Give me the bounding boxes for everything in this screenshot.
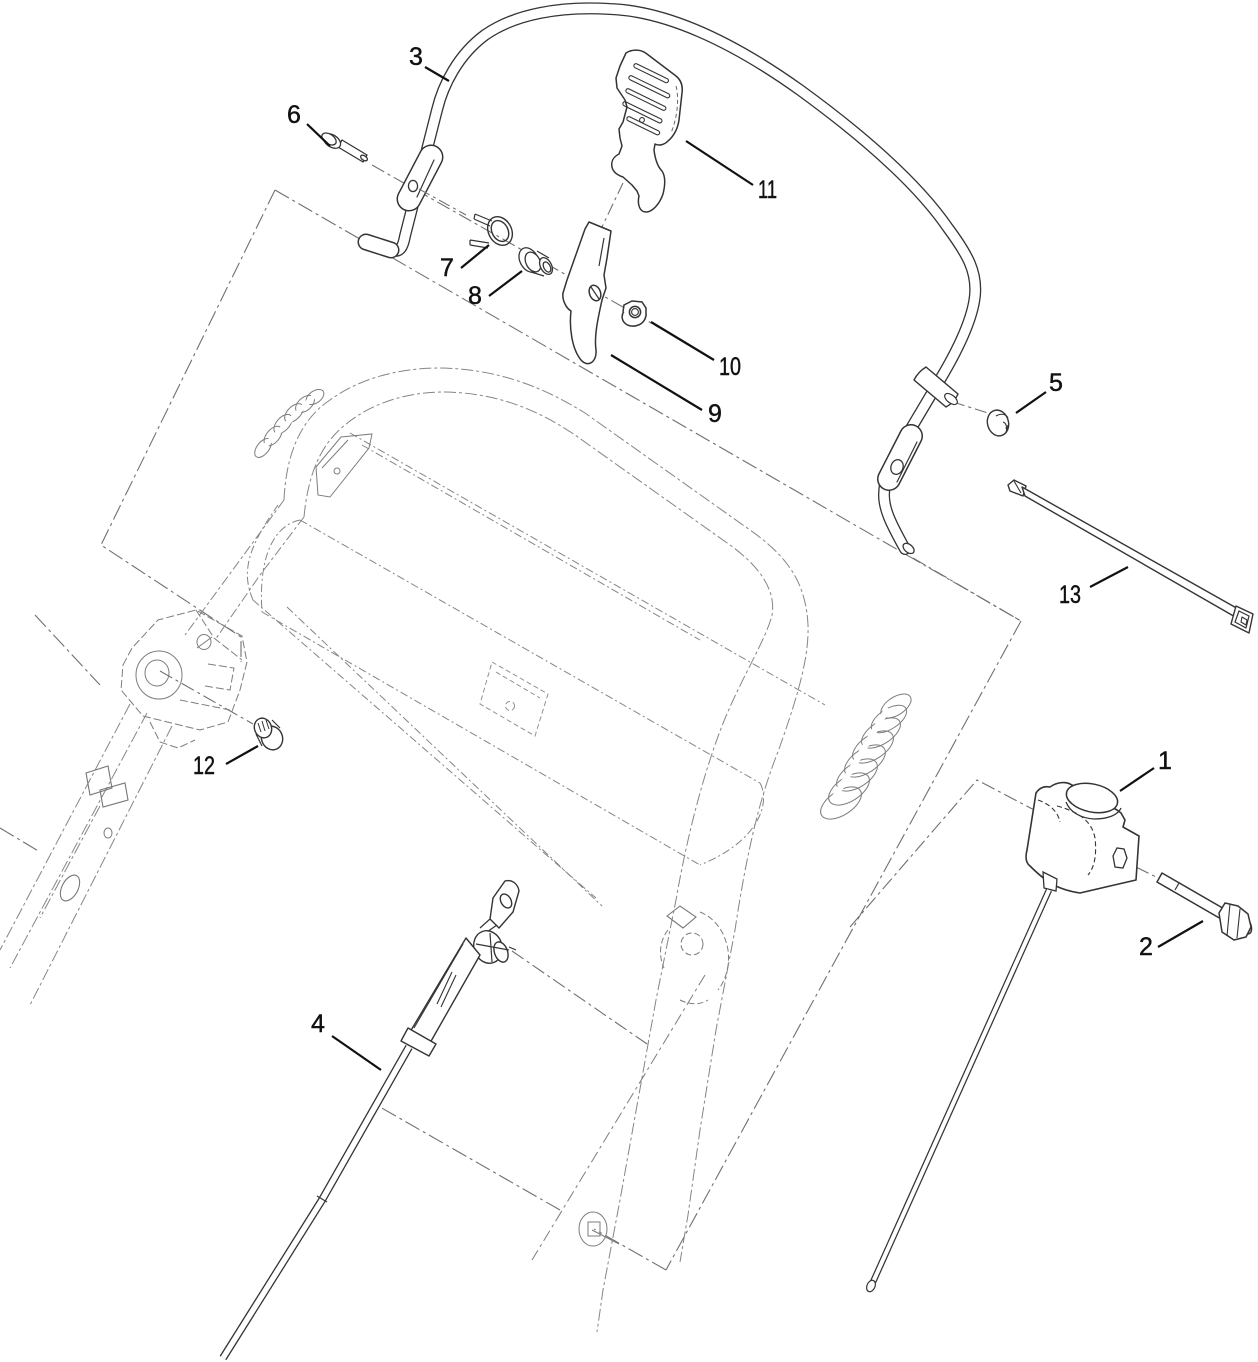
svg-text:6: 6 bbox=[287, 101, 301, 129]
svg-text:10: 10 bbox=[719, 353, 741, 381]
svg-text:7: 7 bbox=[440, 254, 454, 282]
svg-text:11: 11 bbox=[758, 176, 777, 204]
svg-text:12: 12 bbox=[193, 752, 215, 780]
svg-text:13: 13 bbox=[1059, 581, 1081, 609]
svg-text:1: 1 bbox=[1158, 747, 1172, 775]
svg-text:9: 9 bbox=[708, 400, 722, 428]
svg-text:3: 3 bbox=[409, 43, 423, 71]
svg-text:5: 5 bbox=[1049, 369, 1063, 397]
svg-text:8: 8 bbox=[468, 282, 482, 310]
svg-text:2: 2 bbox=[1139, 933, 1153, 961]
svg-text:4: 4 bbox=[311, 1010, 325, 1038]
